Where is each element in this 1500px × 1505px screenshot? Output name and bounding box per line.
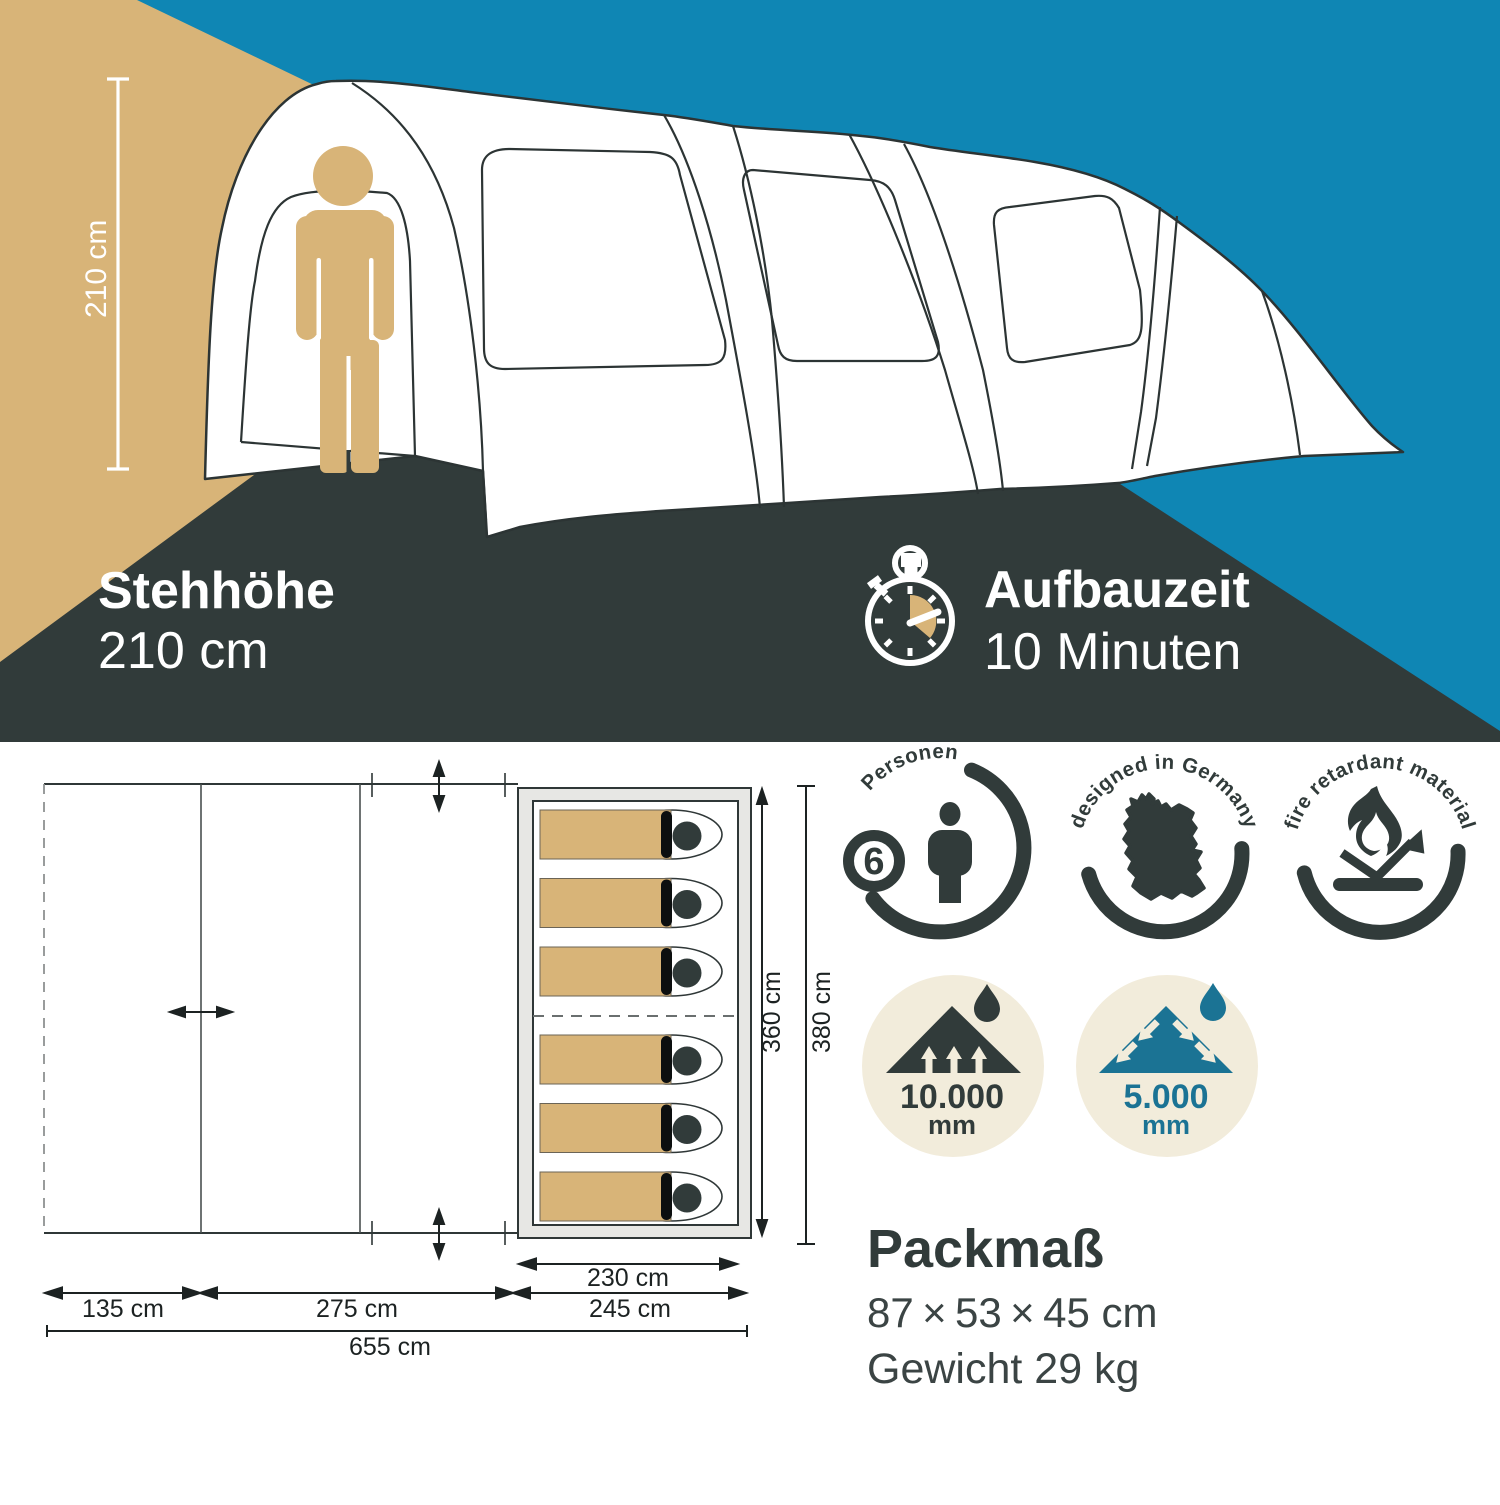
svg-text:10 Minuten: 10 Minuten bbox=[984, 623, 1241, 681]
svg-text:135 cm: 135 cm bbox=[82, 1295, 164, 1323]
svg-text:210 cm: 210 cm bbox=[80, 220, 113, 318]
svg-text:275 cm: 275 cm bbox=[316, 1295, 398, 1323]
svg-text:360 cm: 360 cm bbox=[758, 971, 786, 1053]
svg-text:230 cm: 230 cm bbox=[587, 1264, 669, 1292]
svg-text:Aufbauzeit: Aufbauzeit bbox=[984, 561, 1250, 619]
svg-text:mm: mm bbox=[1142, 1110, 1190, 1140]
svg-text:Packmaß: Packmaß bbox=[867, 1219, 1104, 1279]
svg-text:mm: mm bbox=[928, 1110, 976, 1140]
svg-text:6: 6 bbox=[863, 841, 884, 883]
svg-text:Gewicht 29 kg: Gewicht 29 kg bbox=[867, 1345, 1139, 1393]
svg-text:87 × 53 × 45 cm: 87 × 53 × 45 cm bbox=[867, 1289, 1158, 1336]
svg-text:210 cm: 210 cm bbox=[98, 622, 269, 680]
svg-text:380 cm: 380 cm bbox=[808, 971, 836, 1053]
svg-text:Stehhöhe: Stehhöhe bbox=[98, 562, 335, 620]
svg-text:245 cm: 245 cm bbox=[589, 1295, 671, 1323]
svg-text:655 cm: 655 cm bbox=[349, 1333, 431, 1361]
